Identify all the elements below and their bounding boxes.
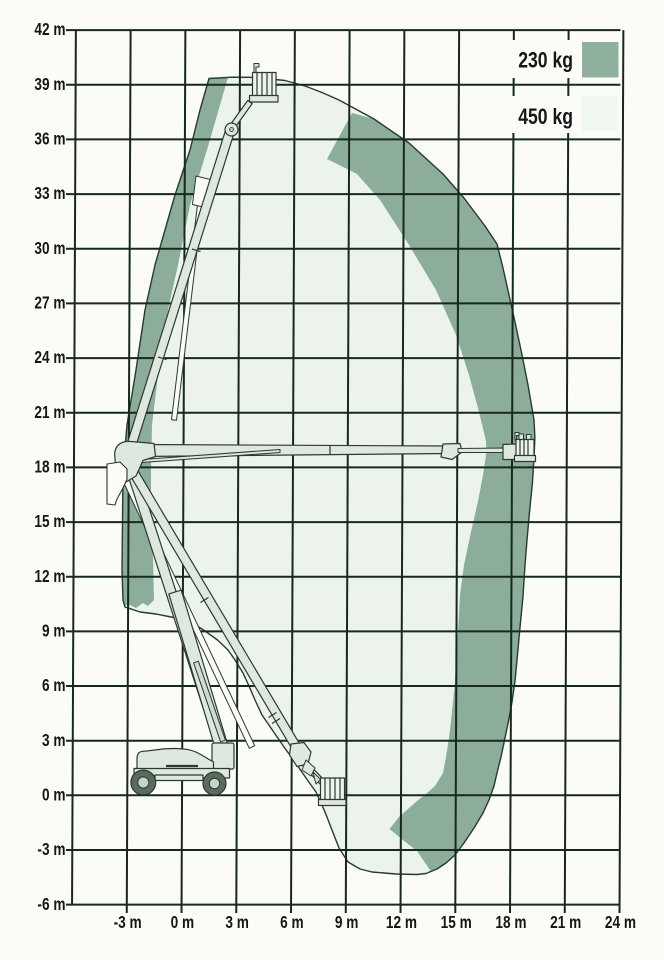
svg-text:0 m: 0 m: [171, 914, 195, 933]
svg-text:18 m: 18 m: [495, 914, 526, 933]
svg-text:24 m: 24 m: [605, 914, 636, 933]
svg-text:6 m: 6 m: [42, 677, 66, 696]
svg-text:230 kg: 230 kg: [518, 49, 573, 73]
svg-text:39 m: 39 m: [34, 75, 65, 94]
svg-text:3 m: 3 m: [225, 914, 249, 933]
svg-text:450 kg: 450 kg: [518, 105, 573, 129]
svg-text:-6 m: -6 m: [37, 895, 65, 914]
svg-text:0 m: 0 m: [42, 786, 66, 805]
svg-text:42 m: 42 m: [34, 21, 65, 40]
svg-text:15 m: 15 m: [34, 513, 65, 532]
svg-text:-3 m: -3 m: [37, 841, 65, 860]
svg-text:-3 m: -3 m: [114, 914, 142, 933]
svg-text:3 m: 3 m: [42, 731, 66, 750]
svg-text:12 m: 12 m: [34, 567, 65, 586]
svg-text:27 m: 27 m: [34, 294, 65, 313]
svg-text:21 m: 21 m: [34, 403, 65, 422]
svg-text:6 m: 6 m: [280, 914, 304, 933]
svg-text:15 m: 15 m: [441, 914, 472, 933]
svg-text:12 m: 12 m: [386, 914, 417, 933]
svg-text:18 m: 18 m: [34, 458, 65, 477]
svg-text:9 m: 9 m: [335, 914, 359, 933]
svg-text:21 m: 21 m: [550, 914, 581, 933]
svg-text:36 m: 36 m: [34, 130, 65, 149]
svg-text:9 m: 9 m: [42, 622, 66, 641]
svg-text:30 m: 30 m: [34, 239, 65, 258]
svg-text:33 m: 33 m: [34, 185, 65, 204]
svg-text:24 m: 24 m: [34, 349, 65, 368]
